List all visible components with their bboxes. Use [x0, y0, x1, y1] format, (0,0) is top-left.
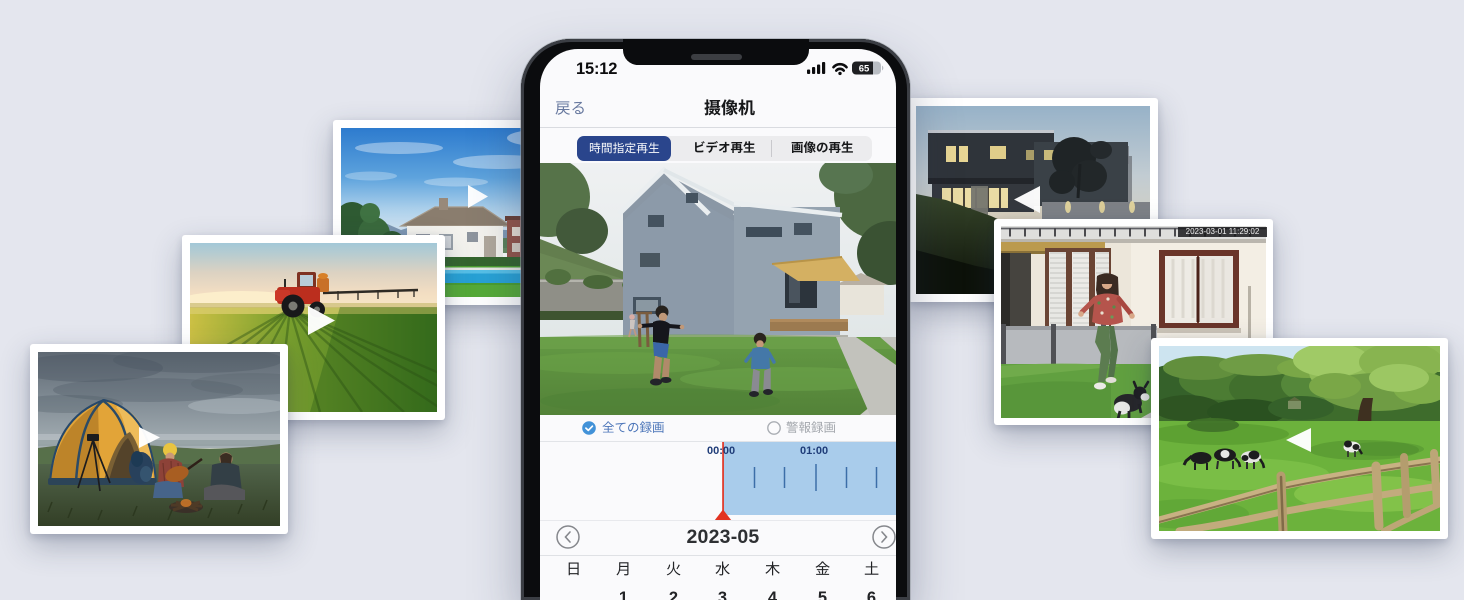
svg-text:65: 65: [859, 64, 870, 75]
